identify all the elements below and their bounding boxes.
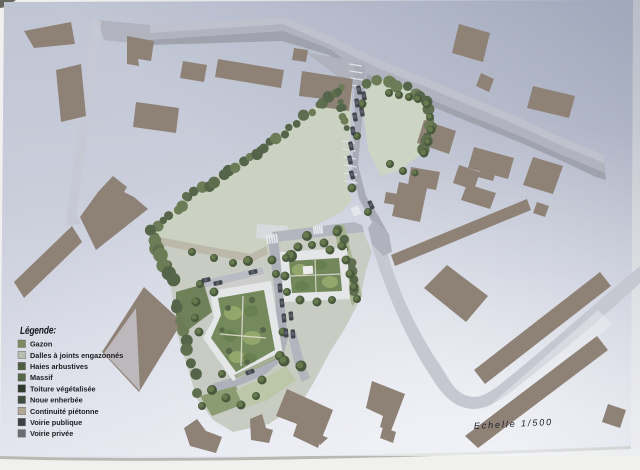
svg-text:Toiture végétalisée: Toiture végétalisée — [30, 384, 96, 393]
svg-text:Noue enherbée: Noue enherbée — [30, 396, 83, 405]
svg-text:Légende:: Légende: — [20, 324, 56, 337]
svg-text:Voirie publique: Voirie publique — [30, 418, 82, 427]
svg-text:Dalles à joints engazonnés: Dalles à joints engazonnés — [30, 351, 123, 360]
svg-text:Continuité piétonne: Continuité piétonne — [30, 407, 99, 416]
svg-text:Voirie privée: Voirie privée — [30, 429, 73, 438]
svg-text:Massif: Massif — [30, 373, 53, 382]
svg-text:Gazon: Gazon — [30, 340, 52, 349]
svg-text:Haies arbustives: Haies arbustives — [30, 362, 88, 371]
